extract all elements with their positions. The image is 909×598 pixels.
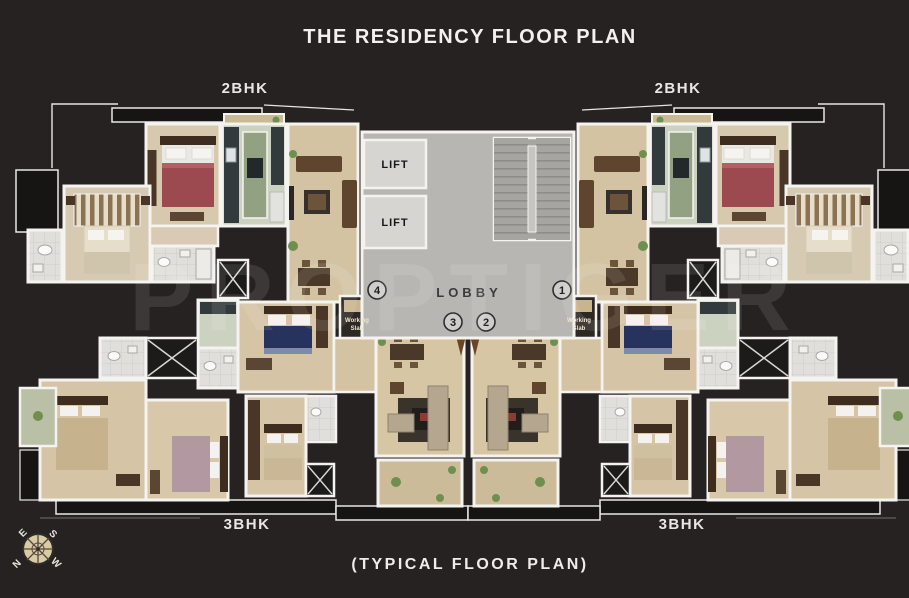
bathroom-4 xyxy=(306,396,336,442)
svg-text:Working: Working xyxy=(567,318,591,324)
lobby-label: LOBBY xyxy=(436,285,502,300)
flat-number-badge-1: 1 xyxy=(553,281,571,299)
bedroom-master xyxy=(146,124,220,226)
kitchen-2 xyxy=(198,300,238,348)
bathroom-common xyxy=(152,246,214,282)
floorplan-canvas: LIFT LIFT LOBBY 4 1 3 2 Working Slab Wor… xyxy=(0,0,909,598)
side-balcony xyxy=(20,388,56,446)
kitchen xyxy=(222,124,286,226)
svg-text:Slab: Slab xyxy=(351,326,364,332)
duct-shaft-3 xyxy=(306,464,334,496)
svg-text:2: 2 xyxy=(483,317,489,329)
svg-text:4: 4 xyxy=(374,285,381,297)
svg-text:3: 3 xyxy=(450,317,456,329)
lift-label-bottom: LIFT xyxy=(381,217,408,229)
corridor xyxy=(150,226,218,246)
svg-text:Working: Working xyxy=(345,318,369,324)
staircase xyxy=(494,138,570,240)
balcony xyxy=(378,460,462,506)
living-dining-unit xyxy=(376,334,466,506)
bed-navy xyxy=(264,306,312,354)
compass-n: N xyxy=(11,558,24,571)
bathroom-annex xyxy=(28,230,62,282)
wing-2bhk xyxy=(28,114,358,302)
bathroom-small xyxy=(198,348,238,388)
entry-corridor xyxy=(334,338,376,392)
svg-text:Slab: Slab xyxy=(573,326,586,332)
duct-shaft xyxy=(218,260,248,298)
bedroom-second xyxy=(64,186,150,282)
bedroom-b xyxy=(146,400,228,500)
lift-label-top: LIFT xyxy=(381,159,408,171)
flat-number-badge-2: 2 xyxy=(477,313,495,331)
bathroom-3 xyxy=(100,338,146,378)
floor-plan-page: LIFT LIFT LOBBY 4 1 3 2 Working Slab Wor… xyxy=(0,0,909,598)
bedroom-mid xyxy=(238,302,334,392)
bed-red xyxy=(160,136,216,207)
living-room xyxy=(288,124,358,302)
flat-number-badge-3: 3 xyxy=(444,313,462,331)
duct-shaft-2 xyxy=(146,338,198,378)
bedroom-a xyxy=(246,396,306,496)
compass-rose: E S N W xyxy=(11,527,63,571)
svg-text:1: 1 xyxy=(559,285,565,297)
flat-number-badge-4: 4 xyxy=(368,281,386,299)
